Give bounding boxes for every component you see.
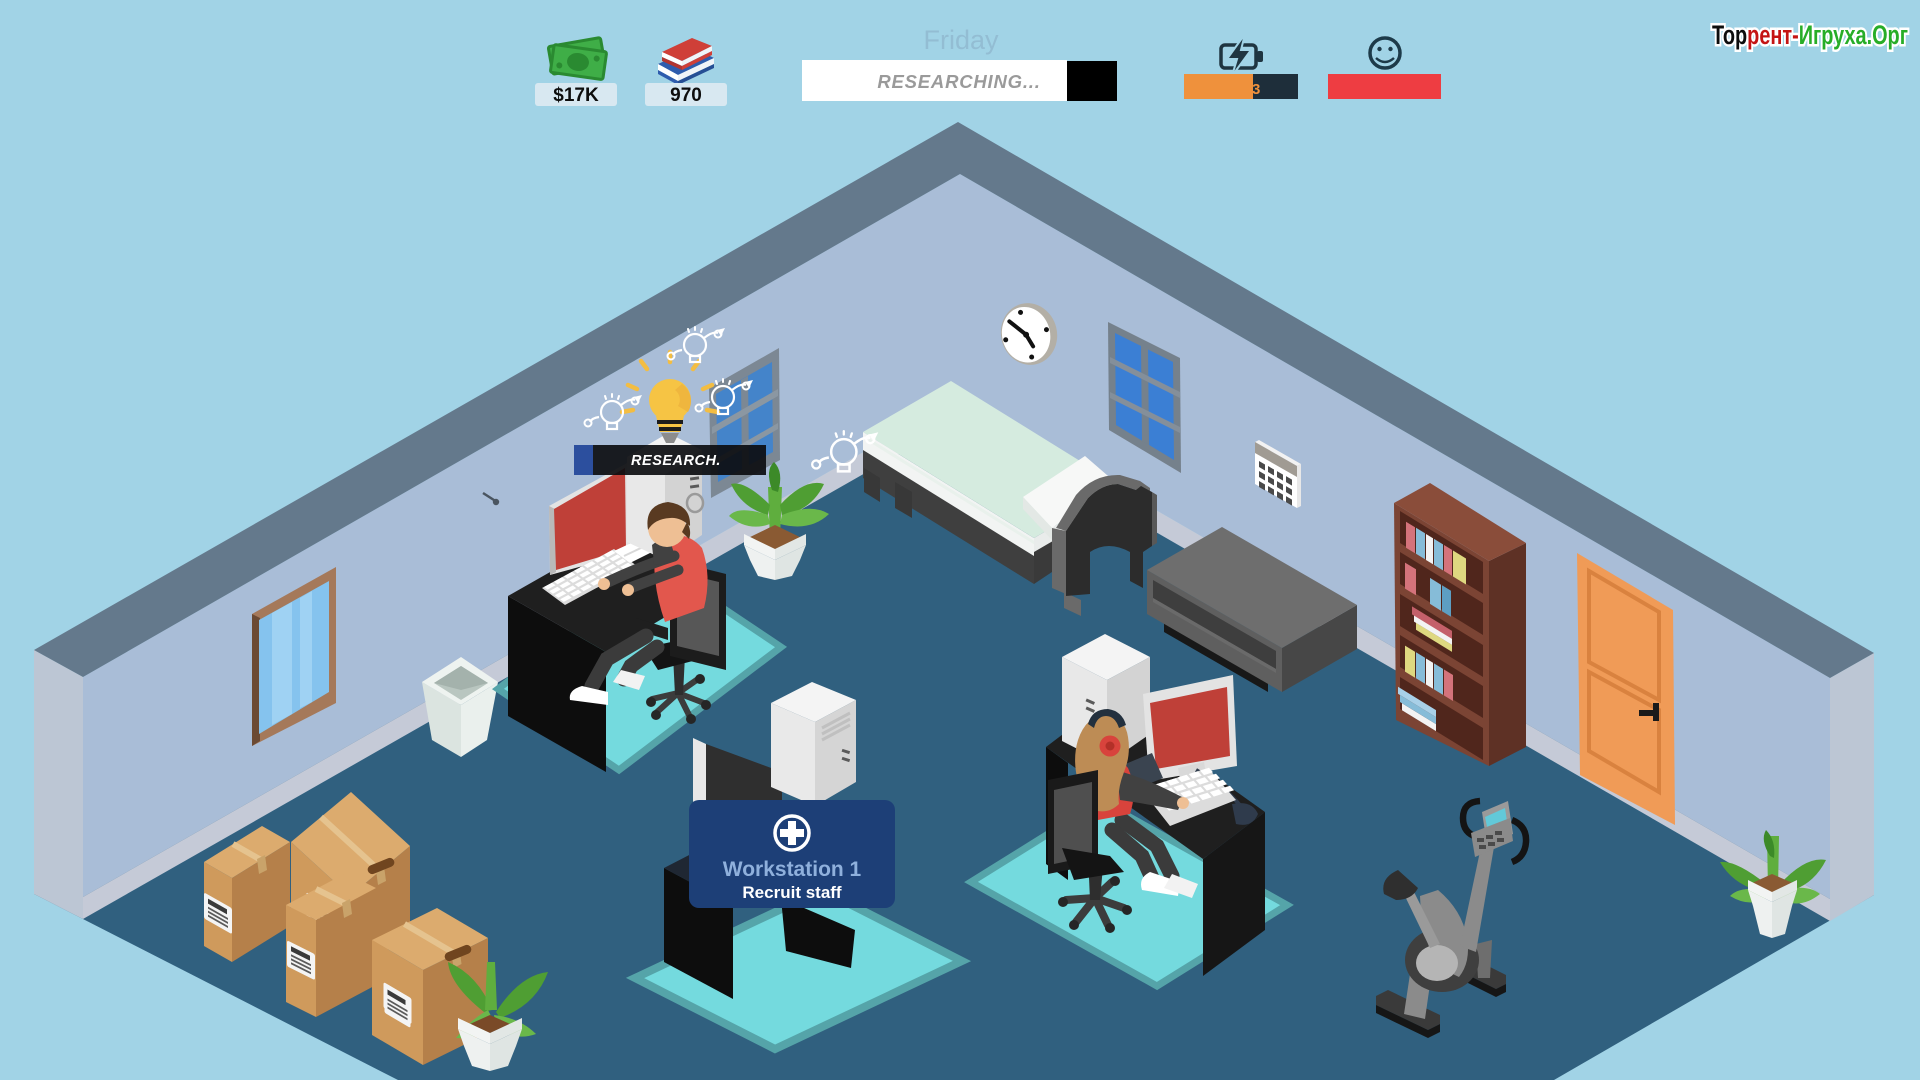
svg-text:$17K: $17K (553, 85, 599, 106)
svg-text:Recruit staff: Recruit staff (742, 883, 842, 902)
svg-text:Торрент-Игруха.Орг: Торрент-Игруха.Орг (1712, 20, 1908, 50)
svg-text:Workstation 1: Workstation 1 (723, 858, 862, 881)
svg-text:3: 3 (1252, 81, 1260, 98)
svg-text:970: 970 (670, 85, 702, 106)
svg-text:RESEARCH.: RESEARCH. (631, 453, 721, 469)
svg-text:Friday: Friday (923, 25, 999, 55)
svg-text:RESEARCHING...: RESEARCHING... (877, 71, 1040, 92)
